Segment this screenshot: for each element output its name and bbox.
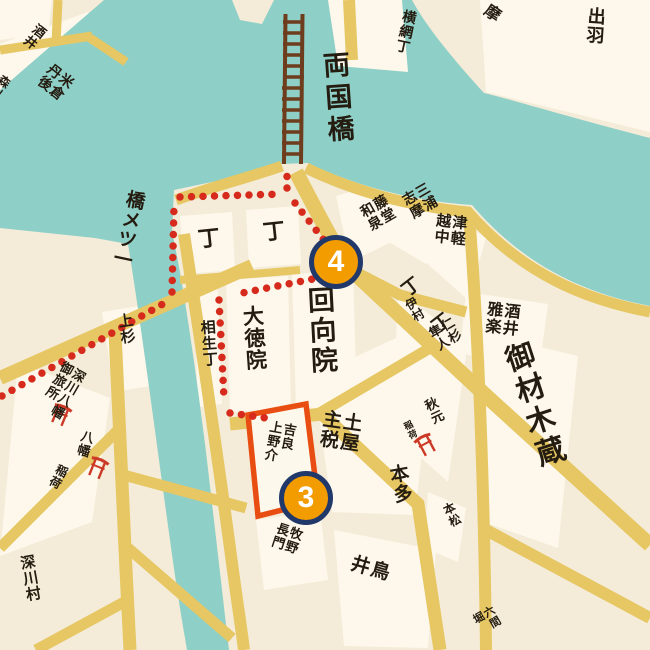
label-dewa: 出羽 xyxy=(583,6,605,45)
label-ekoin: 回向院 xyxy=(303,285,337,376)
road-yokoami xyxy=(349,0,352,60)
label-uesugi: 上杉 xyxy=(116,312,136,346)
label-sakai-uta: 酒井 雅楽 xyxy=(482,300,520,337)
label-ryogoku-bridge: 両国橋 xyxy=(318,50,354,148)
tour-marker-4[interactable]: 4 xyxy=(309,235,363,289)
tour-marker-4-number: 4 xyxy=(328,245,345,279)
label-cho-1: 丁 xyxy=(193,226,219,251)
label-aioi-cho: 相生丁 xyxy=(199,319,218,368)
label-daitokuin: 大徳院 xyxy=(240,304,267,371)
historical-map: 両国橋 橋メツ一 横網丁 出羽 摩 丁 丁 丁 丁 回向院 大徳院 相生丁 吉良… xyxy=(0,0,650,650)
label-tsuchiya-chikara: 土屋 主税 xyxy=(316,408,362,453)
label-tsugaru-etchu: 津軽 越中 xyxy=(433,212,469,247)
tour-marker-3-number: 3 xyxy=(298,481,315,515)
tour-marker-3[interactable]: 3 xyxy=(279,471,333,525)
label-cho-2: 丁 xyxy=(258,219,284,244)
